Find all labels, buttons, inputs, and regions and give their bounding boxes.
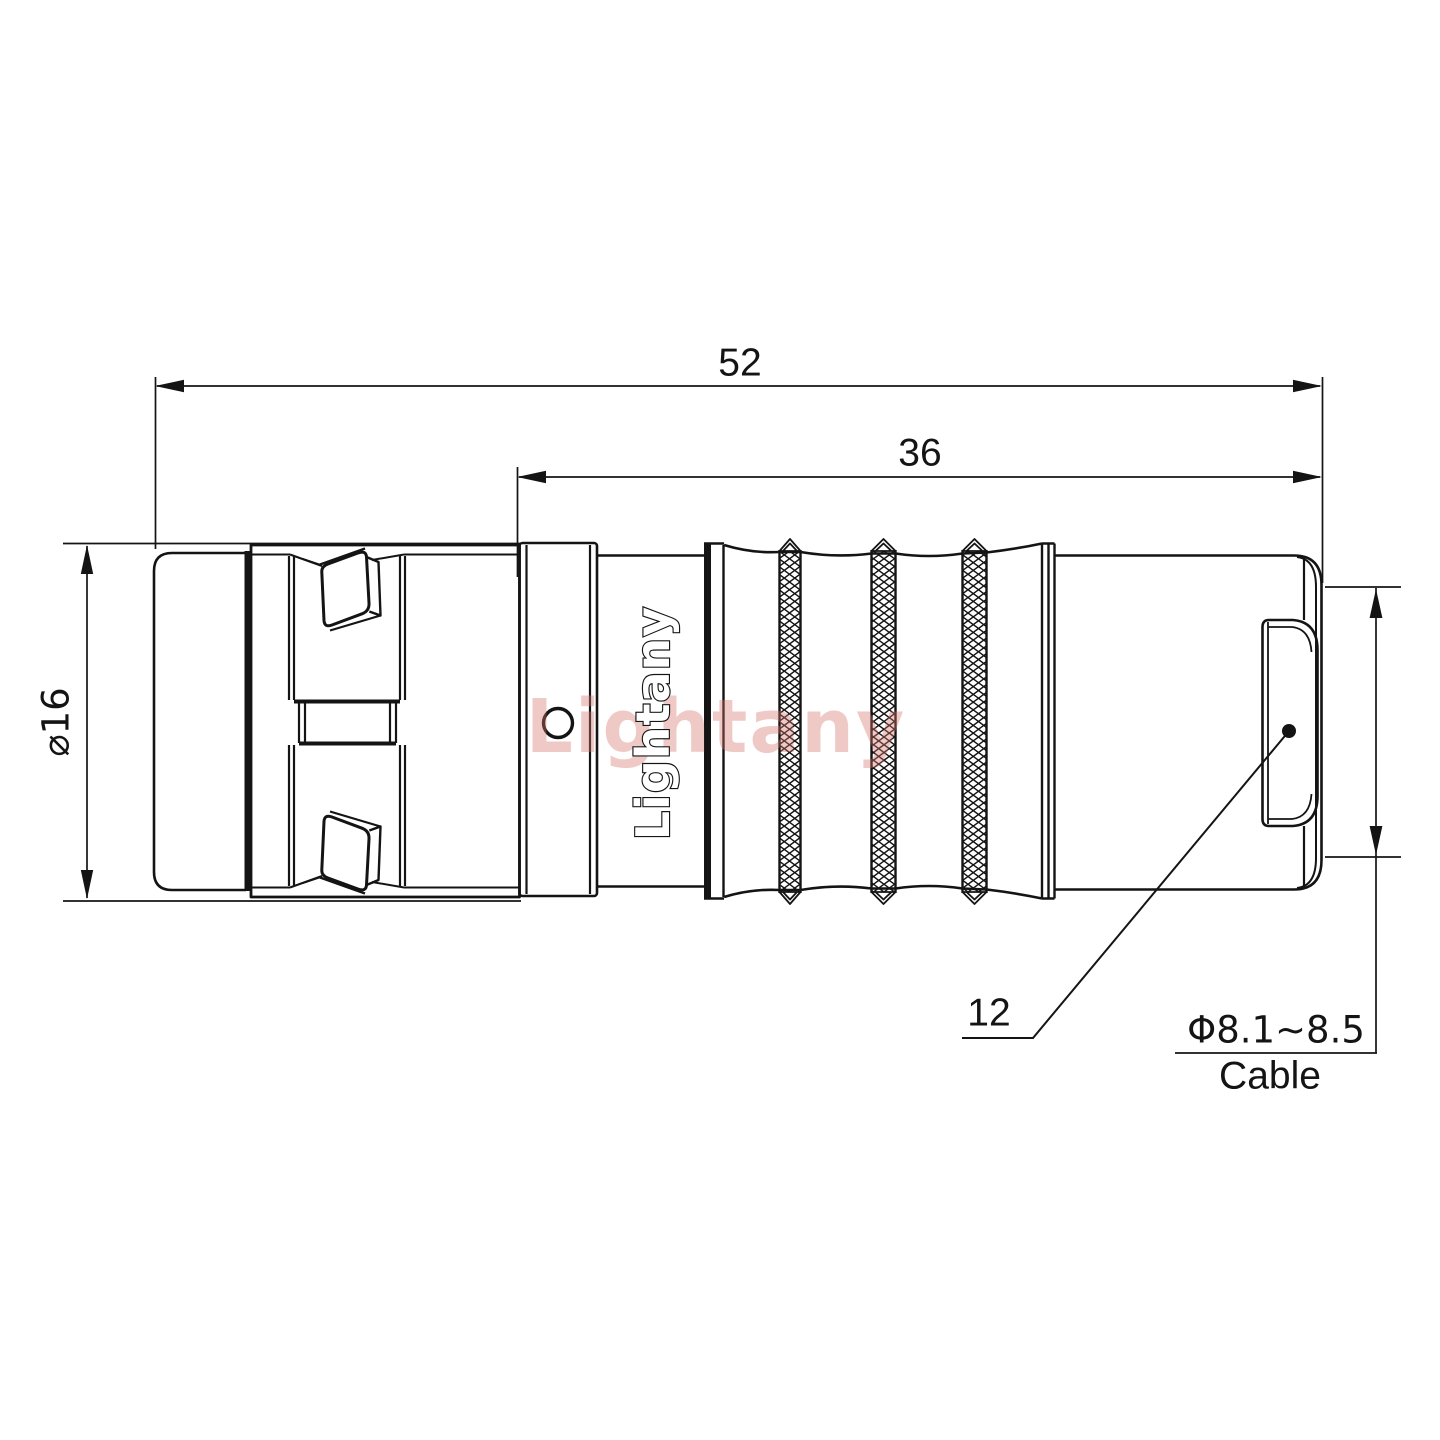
knurl-band-3 — [963, 539, 987, 904]
arrowhead — [1293, 471, 1322, 483]
front-cap — [154, 551, 251, 891]
arrowhead — [517, 471, 546, 483]
leader-line — [962, 731, 1289, 1038]
arrowhead — [1293, 380, 1322, 392]
leader-dot — [1282, 724, 1296, 738]
arrowhead — [81, 545, 93, 574]
latch-shell — [251, 545, 520, 897]
dim-label-cable-range: Φ8.1~8.5 — [1187, 1009, 1365, 1052]
arrowhead — [1370, 589, 1383, 618]
dim-label-rear-nut: 12 — [967, 992, 1010, 1035]
technical-drawing-page: Lightany Lightany 52 36 ⌀16 12 Φ8.1~8.5 … — [0, 0, 1440, 1440]
latch-key-bottom — [290, 812, 404, 894]
dimension-cable-entry — [1175, 587, 1401, 1053]
dimension-total-length — [155, 377, 1323, 583]
dimension-body-diameter — [63, 544, 521, 902]
arrowhead — [155, 380, 184, 392]
latch-key-top — [290, 549, 404, 631]
dimension-rear-length — [517, 467, 1322, 577]
arrowhead — [81, 870, 93, 899]
connector-drawing: Lightany Lightany 52 36 ⌀16 12 Φ8.1~8.5 … — [0, 0, 1440, 1440]
brand-logo-text: Lightany — [626, 606, 680, 841]
watermark-text: Lightany — [526, 684, 906, 770]
latch-slot — [289, 556, 405, 886]
dim-label-body-diameter: ⌀16 — [35, 687, 78, 756]
grip-flange — [1042, 544, 1055, 899]
arrowhead — [1370, 826, 1383, 855]
leader-rear-nut — [962, 724, 1296, 1038]
rear-barrel — [1055, 556, 1322, 890]
cable-bushing — [1263, 620, 1318, 826]
dim-label-total-length: 52 — [718, 342, 761, 385]
dim-label-cable: Cable — [1219, 1055, 1321, 1098]
dim-label-rear-length: 36 — [898, 432, 941, 475]
